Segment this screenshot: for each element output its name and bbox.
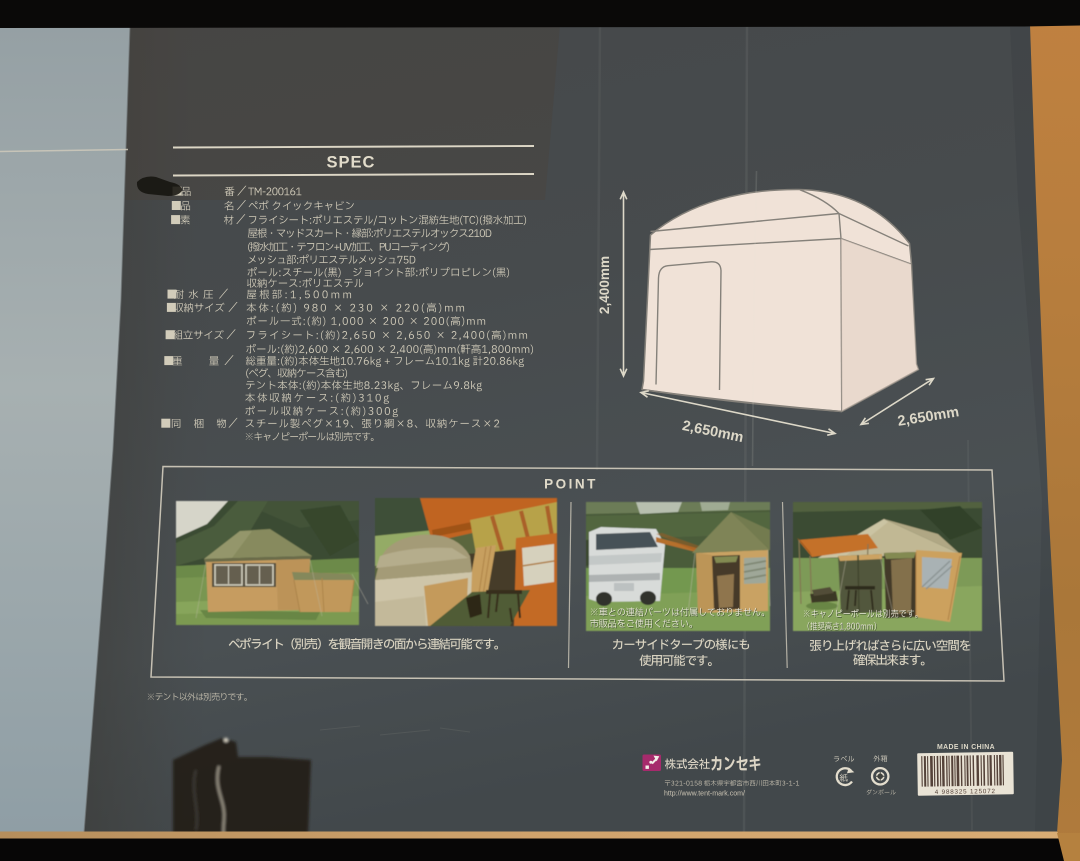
svg-text:2,400mm: 2,400mm: [597, 256, 612, 314]
svg-text:http://www.tent-mark.com/: http://www.tent-mark.com/: [664, 791, 745, 798]
svg-text:MADE IN CHINA: MADE IN CHINA: [937, 744, 995, 751]
svg-text:POINT: POINT: [544, 477, 598, 492]
svg-text:4 988325 125072: 4 988325 125072: [935, 788, 996, 796]
svg-text:SPEC: SPEC: [327, 154, 376, 172]
